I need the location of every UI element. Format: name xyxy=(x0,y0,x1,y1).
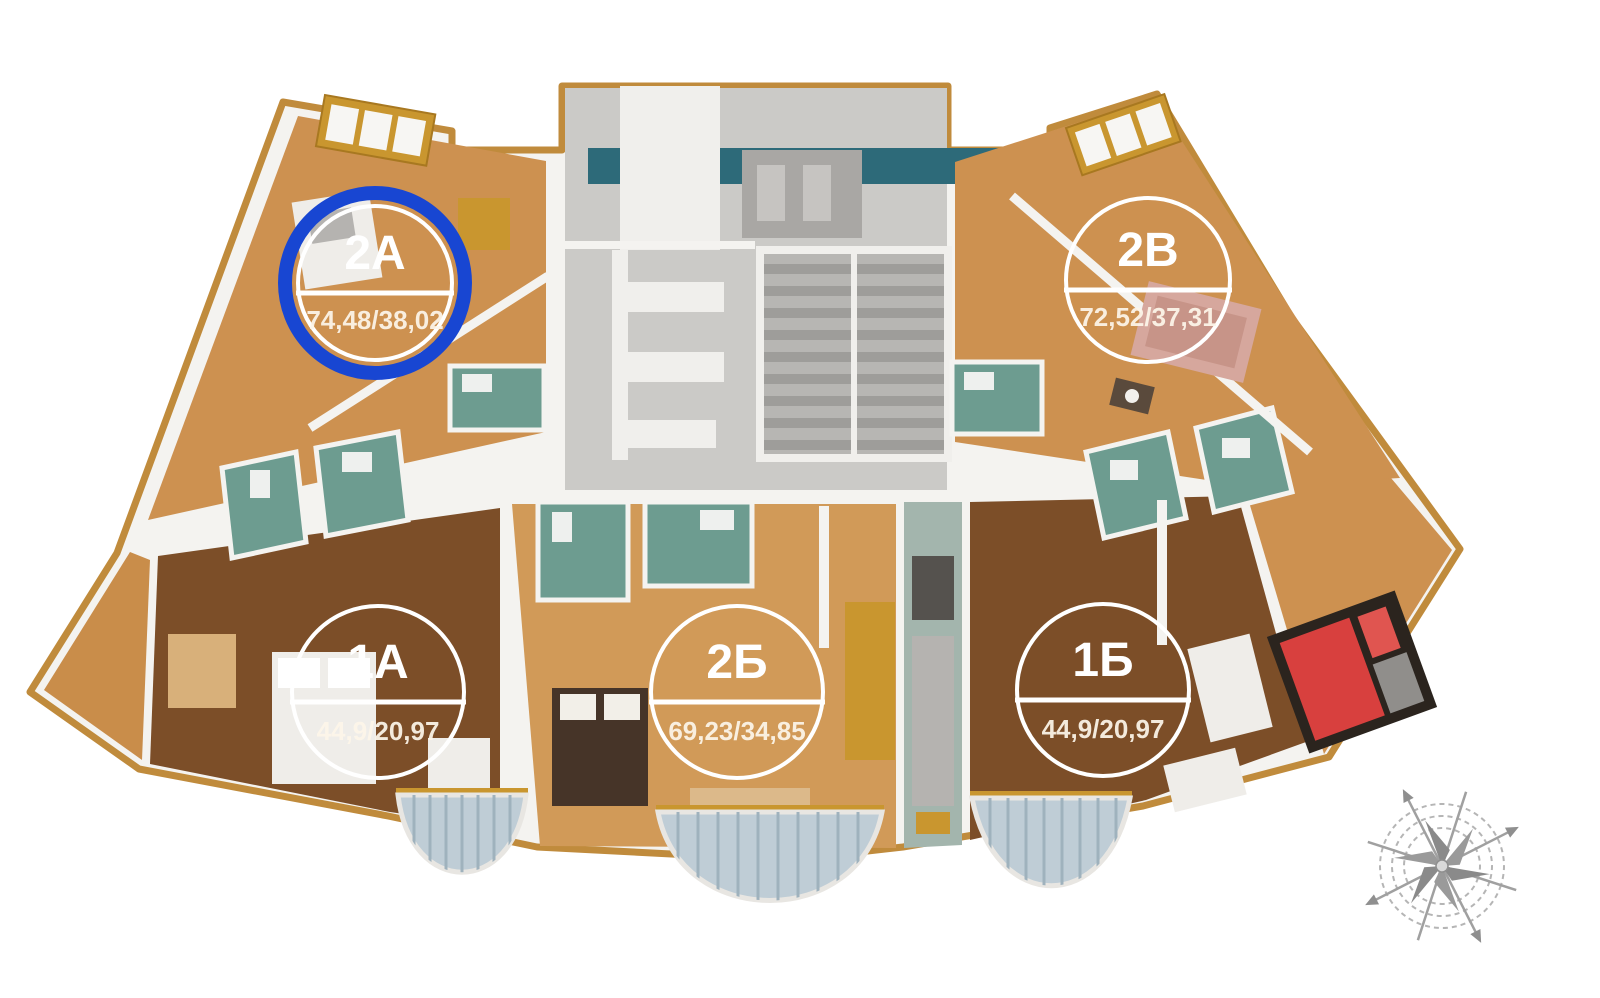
staircase xyxy=(756,246,952,462)
apartment-area: 69,23/34,85 xyxy=(668,716,805,746)
apartment-id: 1А xyxy=(347,636,408,689)
apartment-id: 1Б xyxy=(1072,634,1133,687)
desk-1a xyxy=(168,634,236,708)
apartment-area: 44,9/20,97 xyxy=(317,716,440,746)
apartment-area: 74,48/38,02 xyxy=(306,305,443,335)
floor-plan-canvas: 2А 74,48/38,02 2В 72,52/37,31 1А 44,9/20… xyxy=(0,0,1600,998)
wardrobe xyxy=(458,198,510,250)
compass-pinwheel xyxy=(1382,806,1502,925)
compass-rose-icon xyxy=(1344,768,1541,965)
apartment-id: 2Б xyxy=(706,636,767,689)
balcony-left xyxy=(396,788,528,915)
apartment-id: 2В xyxy=(1117,224,1178,277)
apartment-id: 2А xyxy=(344,227,405,280)
apartment-area: 72,52/37,31 xyxy=(1079,302,1216,332)
balcony-right xyxy=(970,791,1132,918)
bed-2b-center xyxy=(552,688,648,806)
balcony-center xyxy=(656,805,884,935)
sofa-2b-center xyxy=(845,602,895,760)
elevator-shaft xyxy=(620,86,720,250)
kitchen-appliances xyxy=(912,556,954,834)
apartment-area: 44,9/20,97 xyxy=(1042,714,1165,744)
floor-plan: 2А 74,48/38,02 2В 72,52/37,31 1А 44,9/20… xyxy=(0,0,1600,998)
